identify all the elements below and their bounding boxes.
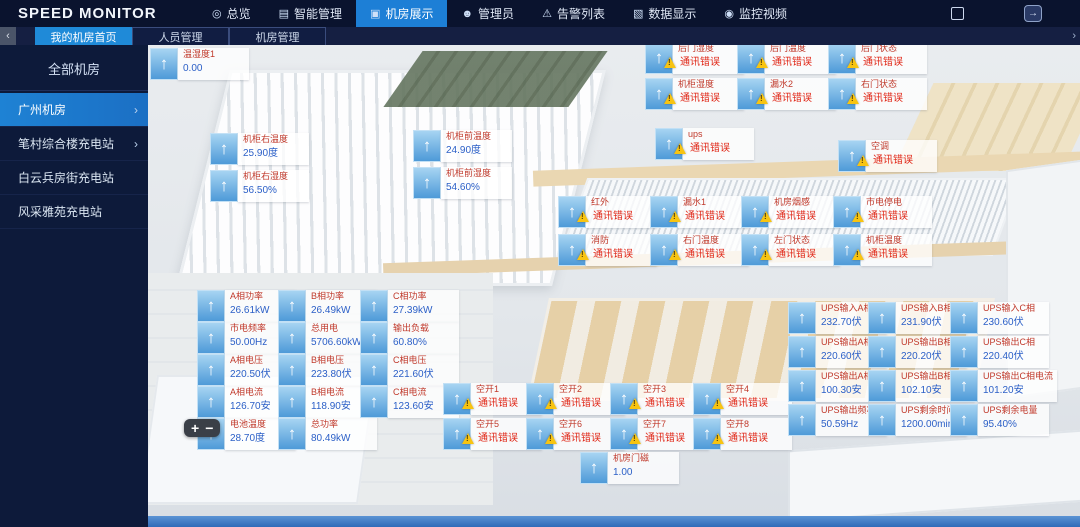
nav-item-data-display[interactable]: ▧ 数据显示: [619, 0, 710, 27]
sensor-arrow-icon: ↑: [788, 336, 816, 368]
warning-icon: [857, 155, 869, 166]
nav-item-smart-management[interactable]: ▤ 智能管理: [265, 0, 356, 27]
sensor-value: 通讯错误: [873, 155, 913, 166]
warning-icon: [462, 398, 474, 409]
sensor-arrow-icon: ↑: [278, 418, 306, 450]
warning-icon: [664, 57, 676, 68]
sensor-value: 118.90安: [311, 401, 351, 412]
sensor-name: 右门温度: [683, 235, 745, 246]
sensor-arrow-icon: ↑: [413, 167, 441, 199]
sensor-arrow-icon: ↑: [197, 322, 225, 354]
sensor-name: UPS剩余电量: [983, 405, 1045, 416]
sensor-name: 漏水1: [683, 197, 745, 208]
sensor-value: 通讯错误: [863, 93, 903, 104]
warning-icon: [674, 143, 686, 154]
sensor-value-label[interactable]: ↑总功率80.49kW: [278, 418, 377, 450]
sensor-error-label[interactable]: ↑漏水1通讯错误: [650, 196, 749, 228]
sensor-arrow-icon: ↑: [197, 386, 225, 418]
sensor-value: 95.40%: [983, 419, 1017, 430]
sensor-value: 221.60伏: [393, 369, 434, 380]
sensor-value: 1.00: [613, 467, 632, 478]
sensor-name: 消防: [591, 235, 653, 246]
sensor-name: 后门湿度: [678, 45, 740, 54]
sensor-error-label[interactable]: ↑左门状态通讯错误: [741, 234, 840, 266]
sensor-value: 0.00: [183, 63, 202, 74]
sensor-value: 通讯错误: [772, 93, 812, 104]
sensor-value: 50.59Hz: [821, 419, 858, 430]
sensor-value-label[interactable]: ↑温湿度10.00: [150, 48, 249, 80]
sensor-value-label[interactable]: ↑机柜右温度25.90度: [210, 133, 309, 165]
nav-label: 数据显示: [648, 5, 696, 22]
sensor-name: 机房门磁: [613, 453, 675, 464]
sensor-arrow-icon: ↑: [150, 48, 178, 80]
sensor-value-label[interactable]: ↑UPS输出C相220.40伏: [950, 336, 1049, 368]
sensor-error-label[interactable]: ↑漏水2通讯错误: [737, 78, 836, 110]
sensor-arrow-icon: ↑: [278, 354, 306, 386]
sensor-value-label[interactable]: ↑UPS剩余电量95.40%: [950, 404, 1049, 436]
sensor-name: 机柜右湿度: [243, 171, 305, 182]
sensor-value: 通讯错误: [478, 398, 518, 409]
sensor-value: 通讯错误: [645, 398, 685, 409]
tab-room-management[interactable]: 机房管理: [229, 27, 326, 45]
warning-icon: [756, 57, 768, 68]
sensor-value: 220.20伏: [901, 351, 942, 362]
nav-label: 总览: [227, 5, 251, 22]
sensor-value-label[interactable]: ↑UPS输入C相230.60伏: [950, 302, 1049, 334]
sensor-value-label[interactable]: ↑C相功率27.39kW: [360, 290, 459, 322]
sensor-value: 220.50伏: [230, 369, 271, 380]
sensor-value: 232.70伏: [821, 317, 862, 328]
nav-item-overview[interactable]: ◎ 总览: [198, 0, 265, 27]
sensor-arrow-icon: ↑: [580, 452, 608, 484]
map-zoom-control: + −: [184, 419, 220, 437]
sensor-name: 后门温度: [770, 45, 832, 54]
sensor-arrow-icon: ↑: [788, 404, 816, 436]
sensor-value: 101.20安: [983, 385, 1024, 396]
sensor-value-label[interactable]: ↑机柜前湿度54.60%: [413, 167, 512, 199]
nav-label: 告警列表: [557, 5, 605, 22]
nav-label: 智能管理: [294, 5, 342, 22]
sensor-error-label[interactable]: ↑右门温度通讯错误: [650, 234, 749, 266]
nav-label: 机房展示: [385, 5, 433, 22]
sensor-name: 机柜前湿度: [446, 168, 508, 179]
warning-icon: [756, 93, 768, 104]
warning-icon: [712, 433, 724, 444]
warning-icon: [852, 211, 864, 222]
sensor-arrow-icon: ↑: [868, 302, 896, 334]
sensor-arrow-icon: ↑: [868, 404, 896, 436]
sensor-value: 56.50%: [243, 185, 277, 196]
sensor-name: UPS输出C相: [983, 337, 1045, 348]
sensor-value: 通讯错误: [645, 433, 685, 444]
fullscreen-icon[interactable]: [951, 7, 964, 20]
sidebar-item-baiyun-station[interactable]: 白云兵房街充电站: [0, 161, 148, 195]
tab-bar: ‹ 我的机房首页 人员管理 机房管理 ›: [0, 27, 1080, 45]
sensor-arrow-icon: ↑: [950, 336, 978, 368]
overview-icon: ◎: [212, 7, 222, 20]
sensor-value: 通讯错误: [868, 211, 908, 222]
sensor-error-label[interactable]: ↑市电停电通讯错误: [833, 196, 932, 228]
sensor-name: ups: [688, 129, 750, 140]
sensor-value: 通讯错误: [593, 211, 633, 222]
sensor-value: 28.70度: [230, 433, 265, 444]
sensor-name: UPS输出C相电流: [983, 371, 1053, 382]
floorplan-3d-viewport[interactable]: ↑温湿度10.00↑机柜右温度25.90度↑机柜右湿度56.50%↑机柜前温度2…: [148, 45, 1080, 527]
sensor-arrow-icon: ↑: [360, 290, 388, 322]
sensor-value-label[interactable]: ↑机柜前温度24.90度: [413, 130, 512, 162]
sensor-value: 220.40伏: [983, 351, 1024, 362]
sensor-value: 通讯错误: [685, 249, 725, 260]
tab-overflow-icon[interactable]: ›: [1072, 30, 1076, 42]
sensor-name: C相电压: [393, 355, 455, 366]
sensor-arrow-icon: ↑: [788, 370, 816, 402]
warning-icon: [669, 211, 681, 222]
nav-item-administrator[interactable]: ☻ 管理员: [447, 0, 528, 27]
sensor-value: 5706.60kWh: [311, 337, 367, 348]
chevron-right-icon: ›: [134, 103, 138, 117]
nav-item-room-display[interactable]: ▣ 机房展示: [356, 0, 447, 27]
tab-personnel-management[interactable]: 人员管理: [132, 27, 229, 45]
sensor-arrow-icon: ↑: [950, 404, 978, 436]
sensor-value-label[interactable]: ↑UPS输出C相电流101.20安: [950, 370, 1057, 402]
sidebar-item-label: 笔村综合楼充电站: [18, 135, 114, 152]
sensor-value: 通讯错误: [868, 249, 908, 260]
sensor-name: 机房烟感: [774, 197, 836, 208]
sensor-arrow-icon: ↑: [197, 354, 225, 386]
top-bar: SPEED MONITOR ◎ 总览 ▤ 智能管理 ▣ 机房展示 ☻ 管理员 ⚠…: [0, 0, 1080, 27]
sensor-name: 漏水2: [770, 79, 832, 90]
sensor-arrow-icon: ↑: [868, 370, 896, 402]
sensor-value: 通讯错误: [561, 433, 601, 444]
warning-icon: [629, 398, 641, 409]
nav-item-video-monitor[interactable]: ◉ 监控视频: [710, 0, 801, 27]
sensor-value-label[interactable]: ↑C相电压221.60伏: [360, 354, 459, 386]
sensor-value: 通讯错误: [478, 433, 518, 444]
sensor-error-label[interactable]: ↑消防通讯错误: [558, 234, 657, 266]
nav-label: 管理员: [478, 5, 514, 22]
sidebar-collapse-icon[interactable]: ‹: [0, 27, 16, 45]
sensor-value-label[interactable]: ↑机柜右湿度56.50%: [210, 170, 309, 202]
sensor-arrow-icon: ↑: [360, 386, 388, 418]
sensor-value: 100.30安: [821, 385, 862, 396]
sensor-value: 230.60伏: [983, 317, 1024, 328]
tab-room-home[interactable]: 我的机房首页: [35, 27, 132, 45]
sensor-value: 24.90度: [446, 145, 481, 156]
top-nav: ◎ 总览 ▤ 智能管理 ▣ 机房展示 ☻ 管理员 ⚠ 告警列表 ▧ 数据显示 ◉…: [198, 0, 801, 27]
sensor-name: UPS输入C相: [983, 303, 1045, 314]
sensor-value: 通讯错误: [593, 249, 633, 260]
sensor-error-label[interactable]: ↑后门温度通讯错误: [737, 45, 836, 74]
sensor-value: 1200.00min: [901, 419, 953, 430]
sidebar-item-label: 风采雅苑充电站: [18, 203, 102, 220]
sidebar: 全部机房 广州机房 › 笔村综合楼充电站 › 白云兵房街充电站 风采雅苑充电站: [0, 45, 148, 527]
zoom-out-button[interactable]: −: [205, 421, 213, 435]
sensor-arrow-icon: ↑: [197, 290, 225, 322]
sensor-arrow-icon: ↑: [950, 370, 978, 402]
sensor-value: 通讯错误: [776, 249, 816, 260]
sensor-value: 50.00Hz: [230, 337, 267, 348]
sensor-arrow-icon: ↑: [210, 170, 238, 202]
warning-icon: [629, 433, 641, 444]
smart-management-icon: ▤: [279, 7, 289, 20]
nav-label: 监控视频: [739, 5, 787, 22]
sensor-value: 26.49kW: [311, 305, 350, 316]
sensor-name: 总功率: [311, 419, 373, 430]
sensor-value: 26.61kW: [230, 305, 269, 316]
sensor-arrow-icon: ↑: [210, 133, 238, 165]
sensor-value: 27.39kW: [393, 305, 432, 316]
sensor-name: 温湿度1: [183, 49, 245, 60]
warning-icon: [712, 398, 724, 409]
sensor-name: 空调: [871, 141, 933, 152]
divider: [0, 90, 148, 91]
sidebar-item-fengcai-station[interactable]: 风采雅苑充电站: [0, 195, 148, 229]
sensor-error-label[interactable]: ↑机柜温度通讯错误: [833, 234, 932, 266]
sensor-name: 空开4: [726, 384, 788, 395]
sensor-arrow-icon: ↑: [868, 336, 896, 368]
sensor-value: 231.90伏: [901, 317, 942, 328]
sensor-name: 市电停电: [866, 197, 928, 208]
sensor-arrow-icon: ↑: [360, 354, 388, 386]
nav-item-alarm-list[interactable]: ⚠ 告警列表: [528, 0, 619, 27]
sensor-arrow-icon: ↑: [278, 386, 306, 418]
sensor-value: 通讯错误: [863, 57, 903, 68]
sensor-error-label[interactable]: ↑ups通讯错误: [655, 128, 754, 160]
sensor-error-label[interactable]: ↑空开8通讯错误: [693, 418, 792, 450]
sensor-error-label[interactable]: ↑后门状态通讯错误: [828, 45, 927, 74]
sensor-name: 红外: [591, 197, 653, 208]
sensor-error-label[interactable]: ↑机房烟感通讯错误: [741, 196, 840, 228]
warning-icon: [545, 398, 557, 409]
sensor-value: 通讯错误: [680, 57, 720, 68]
warning-icon: [847, 93, 859, 104]
tabs: 我的机房首页 人员管理 机房管理: [35, 27, 326, 45]
sensor-error-label[interactable]: ↑红外通讯错误: [558, 196, 657, 228]
sensor-arrow-icon: ↑: [278, 290, 306, 322]
sensor-value: 通讯错误: [728, 398, 768, 409]
sensor-value: 通讯错误: [685, 211, 725, 222]
topbar-right-icons: →: [951, 5, 1042, 22]
sensor-value: 220.60伏: [821, 351, 862, 362]
sensor-value: 223.80伏: [311, 369, 352, 380]
sensor-name: 机柜右温度: [243, 134, 305, 145]
room-display-icon: ▣: [370, 7, 380, 20]
sensor-name: C相功率: [393, 291, 455, 302]
sensor-arrow-icon: ↑: [950, 302, 978, 334]
warning-icon: [669, 249, 681, 260]
warning-icon: [545, 433, 557, 444]
sensor-name: 机柜湿度: [678, 79, 740, 90]
sensor-value-label[interactable]: ↑机房门磁1.00: [580, 452, 679, 484]
sensor-value: 通讯错误: [680, 93, 720, 104]
alarm-list-icon: ⚠: [542, 7, 552, 20]
warning-icon: [847, 57, 859, 68]
warning-icon: [577, 249, 589, 260]
warning-icon: [664, 93, 676, 104]
sensor-value: 25.90度: [243, 148, 278, 159]
warning-icon: [462, 433, 474, 444]
sidebar-item-label: 广州机房: [18, 101, 66, 118]
zoom-in-button[interactable]: +: [191, 421, 199, 435]
sensor-value: 54.60%: [446, 182, 480, 193]
app-logo: SPEED MONITOR: [18, 5, 198, 22]
sidebar-item-guangzhou-room[interactable]: 广州机房 ›: [0, 93, 148, 127]
sensor-name: 左门状态: [774, 235, 836, 246]
sensor-error-label[interactable]: ↑空调通讯错误: [838, 140, 937, 172]
sensor-error-label[interactable]: ↑右门状态通讯错误: [828, 78, 927, 110]
exit-icon[interactable]: →: [1024, 5, 1042, 22]
sensor-arrow-icon: ↑: [788, 302, 816, 334]
sensor-name: 机柜前温度: [446, 131, 508, 142]
sensor-error-label[interactable]: ↑空开4通讯错误: [693, 383, 792, 415]
warning-icon: [760, 249, 772, 260]
sensor-name: 空开8: [726, 419, 788, 430]
sensor-value: 60.80%: [393, 337, 427, 348]
warning-icon: [577, 211, 589, 222]
bottom-strip: [148, 516, 1080, 527]
sensor-error-label[interactable]: ↑机柜湿度通讯错误: [645, 78, 744, 110]
sensor-value: 80.49kW: [311, 433, 350, 444]
administrator-icon: ☻: [461, 8, 473, 20]
sidebar-item-label: 白云兵房街充电站: [18, 169, 114, 186]
sensor-arrow-icon: ↑: [360, 322, 388, 354]
sensor-value: 通讯错误: [690, 143, 730, 154]
sensor-value: 通讯错误: [728, 433, 768, 444]
sensor-value: 126.70安: [230, 401, 271, 412]
sensor-value: 通讯错误: [561, 398, 601, 409]
sensor-name: 机柜温度: [866, 235, 928, 246]
sensor-value: 通讯错误: [776, 211, 816, 222]
sidebar-header: 全部机房: [0, 45, 148, 90]
video-monitor-icon: ◉: [724, 7, 734, 20]
sensor-error-label[interactable]: ↑后门湿度通讯错误: [645, 45, 744, 74]
sidebar-item-bicun-station[interactable]: 笔村综合楼充电站 ›: [0, 127, 148, 161]
sensor-layer: ↑温湿度10.00↑机柜右温度25.90度↑机柜右湿度56.50%↑机柜前温度2…: [148, 45, 1080, 527]
sensor-name: 右门状态: [861, 79, 923, 90]
sensor-arrow-icon: ↑: [278, 322, 306, 354]
warning-icon: [760, 211, 772, 222]
warning-icon: [852, 249, 864, 260]
sensor-value: 102.10安: [901, 385, 942, 396]
sensor-arrow-icon: ↑: [413, 130, 441, 162]
sensor-name: 输出负载: [393, 323, 455, 334]
sensor-name: 后门状态: [861, 45, 923, 54]
sensor-value: 通讯错误: [772, 57, 812, 68]
sensor-value: 123.60安: [393, 401, 434, 412]
chevron-right-icon: ›: [134, 137, 138, 151]
data-display-icon: ▧: [633, 7, 643, 20]
sensor-value-label[interactable]: ↑输出负载60.80%: [360, 322, 459, 354]
